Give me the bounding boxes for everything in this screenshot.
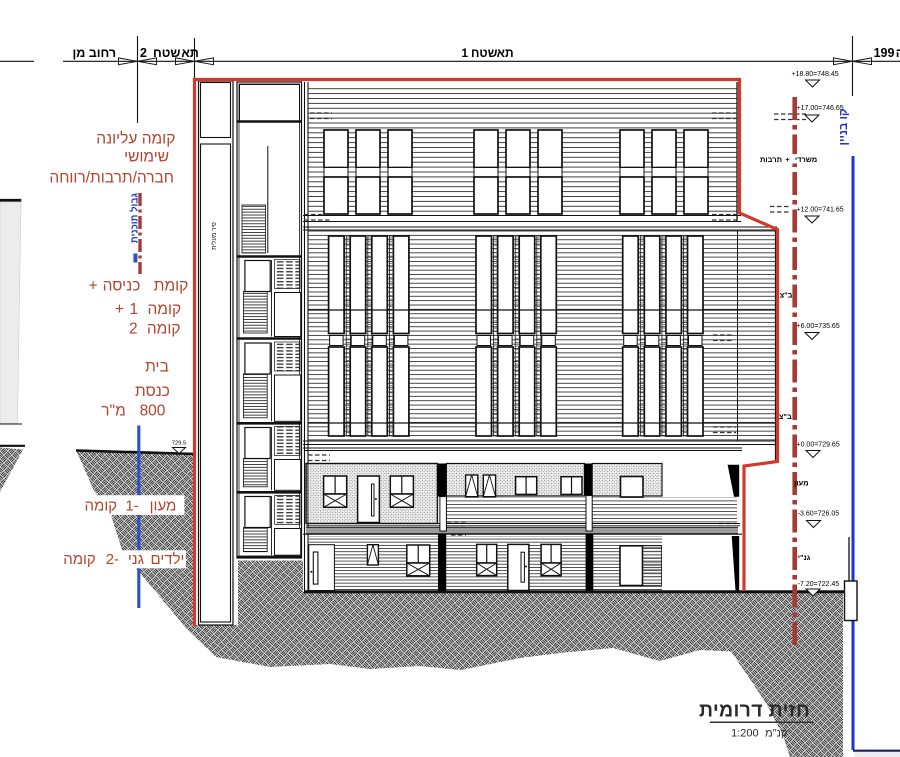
- svg-text:קומה: קומה: [85, 497, 118, 514]
- svg-text:1:200: 1:200: [731, 728, 759, 740]
- svg-text:בית: בית: [145, 359, 169, 376]
- svg-text:מ"ר: מ"ר: [101, 402, 125, 419]
- svg-text:ב"צ: ב"צ: [780, 291, 793, 300]
- svg-text:שטח: שטח: [153, 46, 180, 60]
- svg-text:1: 1: [129, 301, 138, 318]
- svg-text:+18.80=748.45: +18.80=748.45: [792, 71, 839, 78]
- svg-text:כנסת: כנסת: [135, 383, 170, 400]
- svg-text:חזית דרומית: חזית דרומית: [699, 700, 810, 722]
- svg-text:קומה: קומה: [147, 301, 181, 318]
- svg-text:+: +: [115, 301, 124, 318]
- svg-text:קומת: קומת: [154, 277, 189, 294]
- svg-text:2-: 2-: [106, 551, 119, 568]
- svg-text:+: +: [785, 155, 790, 164]
- svg-text:ב"צ: ב"צ: [779, 412, 792, 421]
- svg-text:מעון: מעון: [150, 497, 177, 514]
- svg-text:מעון: מעון: [794, 478, 809, 487]
- svg-text:גבול תוכנית: גבול תוכנית: [130, 193, 141, 244]
- svg-text:קומה עליונה: קומה עליונה: [96, 131, 175, 148]
- svg-text:+0.00=729.65: +0.00=729.65: [797, 442, 840, 449]
- svg-text:+: +: [88, 277, 97, 294]
- svg-text:קומה: קומה: [147, 320, 181, 337]
- svg-text:-3.60=726.05: -3.60=726.05: [798, 511, 840, 518]
- svg-text:199: 199: [874, 46, 895, 60]
- svg-text:1-: 1-: [125, 497, 138, 514]
- svg-text:גני: גני: [128, 551, 144, 568]
- svg-text:שימושי: שימושי: [124, 149, 169, 166]
- svg-text:פיר מעלית: פיר מעלית: [210, 222, 218, 250]
- svg-text:+12.00=741.65: +12.00=741.65: [797, 207, 844, 214]
- svg-text:1: 1: [461, 46, 468, 60]
- svg-text:קומה: קומה: [63, 551, 96, 568]
- svg-text:+6.00=735.65: +6.00=735.65: [797, 323, 840, 330]
- svg-text:ילדים: ילדים: [151, 551, 185, 568]
- svg-text:כניסה: כניסה: [103, 277, 141, 294]
- svg-text:2: 2: [129, 320, 138, 337]
- svg-text:-7.20=722.45: -7.20=722.45: [798, 581, 840, 588]
- svg-text:קנ"מ: קנ"מ: [765, 728, 787, 740]
- svg-text:+17.00=746.65: +17.00=746.65: [797, 105, 844, 112]
- svg-text:חלקה: חלקה: [896, 46, 900, 60]
- svg-text:תא: תא: [497, 46, 514, 60]
- svg-text:800: 800: [140, 402, 166, 419]
- svg-text:729.5: 729.5: [172, 441, 187, 447]
- svg-text:שטח: שטח: [471, 46, 498, 60]
- svg-text:תרבות: תרבות: [760, 155, 782, 164]
- svg-text:2: 2: [140, 46, 147, 60]
- svg-text:קו בניין: קו בניין: [838, 109, 850, 146]
- svg-text:תא: תא: [181, 46, 199, 60]
- svg-text:חברה/תרבות/רווחה: חברה/תרבות/רווחה: [49, 170, 174, 187]
- svg-text:משרדי: משרדי: [795, 155, 817, 164]
- svg-text:גנ"י: גנ"י: [798, 553, 811, 562]
- svg-text:רחוב מן: רחוב מן: [72, 46, 116, 60]
